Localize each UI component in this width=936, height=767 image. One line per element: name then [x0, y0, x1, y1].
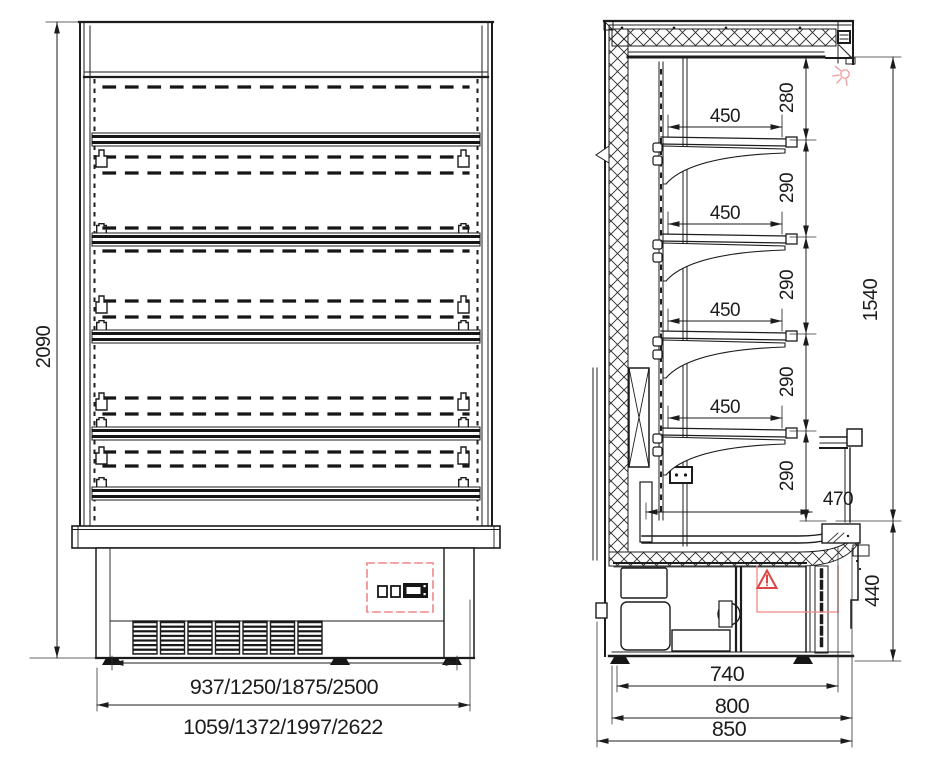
service-zone-marking — [757, 566, 838, 612]
condenser-unit — [621, 568, 667, 598]
dim-label-overall-depth: 850 — [712, 717, 747, 741]
dim-label-shelf-pitch: 290 — [777, 173, 798, 203]
dim-label-body-depth: 800 — [715, 694, 750, 718]
technical-drawing-page: 2090 937/1250/1875/2500 1059/1372/1997/2… — [0, 0, 936, 767]
dim-label-shelf-pitch: 290 — [777, 270, 798, 300]
shelf-section — [653, 428, 797, 475]
dim-label-well-depth: 470 — [823, 489, 853, 510]
dim-label-height: 2090 — [33, 325, 55, 368]
dim-label-top-clearance: 280 — [777, 83, 798, 113]
dim-label-base-height: 440 — [862, 575, 884, 607]
dim-label-inner-width: 937/1250/1875/2500 — [190, 675, 379, 699]
dim-label-shelf-pitch: 290 — [777, 461, 798, 491]
shelf-section — [653, 331, 797, 378]
well-floor — [642, 524, 847, 536]
warning-triangle-icon — [758, 571, 777, 589]
dim-label-shelf-depth: 450 — [710, 300, 740, 321]
dim-label-shelf-depth: 450 — [710, 106, 740, 127]
drain-tray — [672, 630, 730, 651]
front-riser — [820, 429, 862, 543]
controller-display-icon — [403, 583, 428, 598]
shelf-section — [653, 234, 797, 281]
junction-box — [670, 467, 692, 483]
light-ballast — [838, 31, 850, 43]
technical-drawing: 2090 937/1250/1875/2500 1059/1372/1997/2… — [0, 0, 936, 767]
front-sill — [822, 524, 860, 543]
dim-label-opening-height: 1540 — [860, 278, 882, 321]
switch-icon — [391, 586, 400, 597]
front-view: 2090 937/1250/1875/2500 1059/1372/1997/2… — [30, 22, 500, 739]
lamp-icon — [833, 67, 849, 86]
shelf-section — [653, 137, 797, 184]
dim-label-shelf-depth: 450 — [710, 203, 740, 224]
compressor — [621, 602, 670, 650]
ventilation-grille — [133, 621, 322, 654]
dim-label-shelf-depth: 450 — [710, 397, 740, 418]
dim-label-base-depth: 740 — [710, 662, 745, 686]
dim-label-shelf-pitch: 290 — [777, 367, 798, 397]
side-view: 450 450 450 450 470 280 290 290 290 290 … — [593, 21, 901, 747]
switch-icon — [378, 586, 387, 597]
dim-label-overall-width: 1059/1372/1997/2622 — [183, 715, 383, 739]
wall-bracket-icon — [596, 146, 609, 163]
